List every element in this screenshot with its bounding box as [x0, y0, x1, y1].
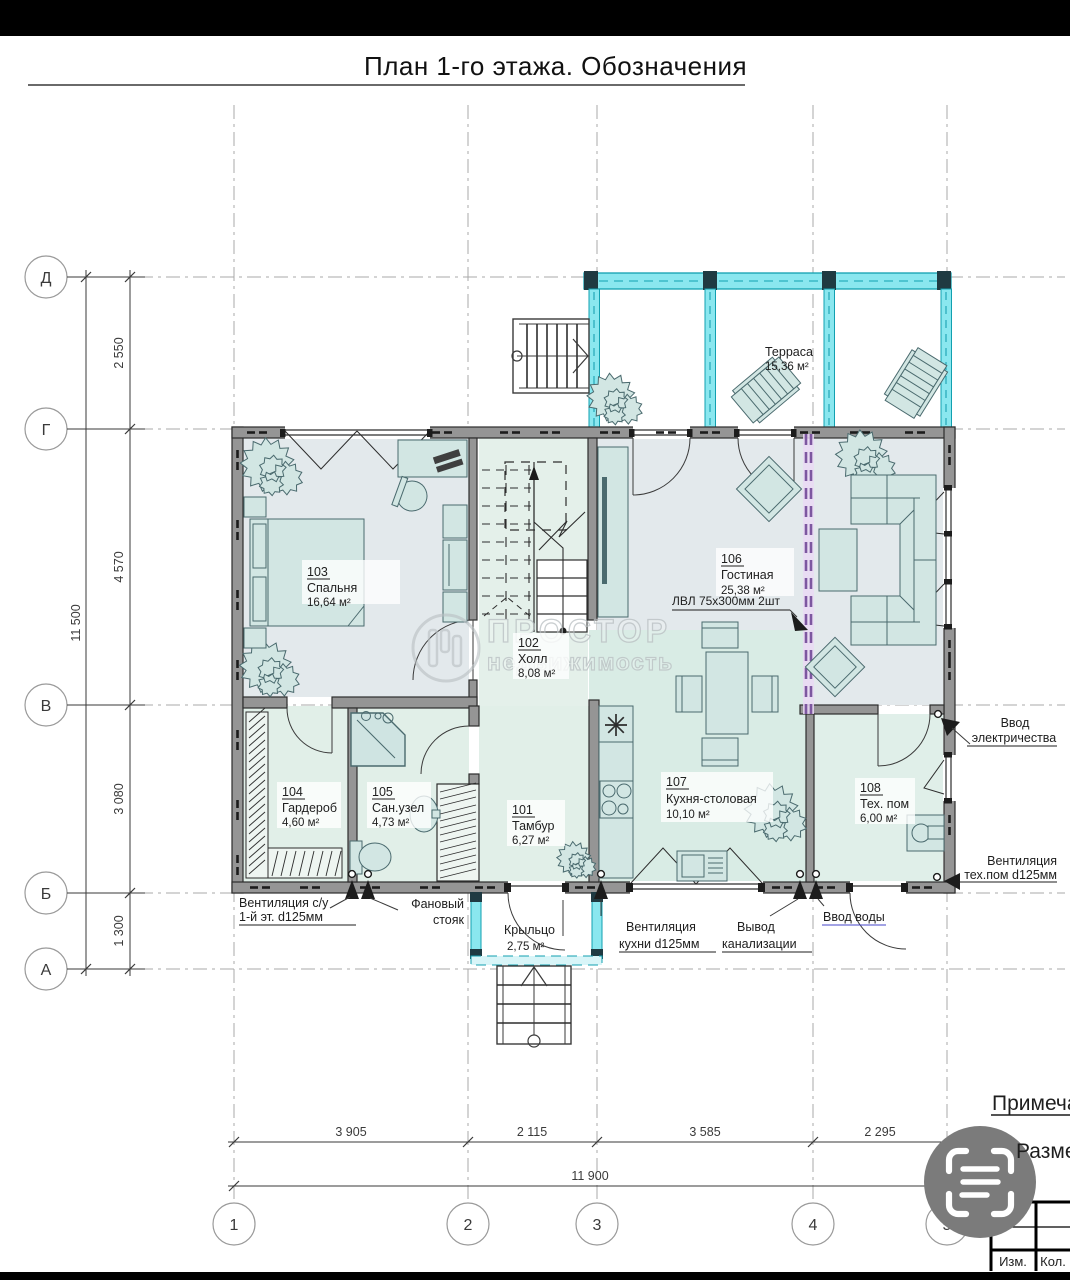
svg-text:Тех. пом: Тех. пом — [860, 797, 909, 811]
svg-text:Вентиляция: Вентиляция — [626, 920, 696, 934]
svg-text:План 1-го этажа. Обозначения: План 1-го этажа. Обозначения — [364, 51, 747, 81]
svg-text:Размеры: Размеры — [1016, 1140, 1070, 1163]
svg-text:2: 2 — [464, 1217, 473, 1234]
svg-text:Гардероб: Гардероб — [282, 801, 337, 815]
svg-text:Кухня-столовая: Кухня-столовая — [666, 792, 757, 806]
svg-text:1: 1 — [230, 1217, 239, 1234]
svg-text:6,00 м²: 6,00 м² — [860, 813, 897, 825]
svg-text:106: 106 — [721, 552, 742, 566]
svg-text:104: 104 — [282, 785, 303, 799]
svg-text:11 900: 11 900 — [571, 1169, 608, 1183]
svg-text:Кол.: Кол. — [1040, 1254, 1066, 1269]
svg-text:103: 103 — [307, 565, 328, 579]
svg-text:108: 108 — [860, 781, 881, 795]
svg-text:2 295: 2 295 — [864, 1125, 895, 1139]
svg-text:ЛВЛ 75х300мм 2шт: ЛВЛ 75х300мм 2шт — [672, 594, 780, 608]
svg-text:4: 4 — [809, 1217, 818, 1234]
svg-text:Крыльцо: Крыльцо — [504, 923, 555, 937]
svg-text:Фановый: Фановый — [411, 897, 464, 911]
svg-text:1-й эт. d125мм: 1-й эт. d125мм — [239, 910, 323, 924]
svg-text:Д: Д — [41, 270, 52, 287]
svg-text:тех.пом d125мм: тех.пом d125мм — [964, 868, 1057, 882]
svg-text:105: 105 — [372, 785, 393, 799]
svg-text:107: 107 — [666, 775, 687, 789]
svg-text:В: В — [41, 698, 52, 715]
svg-text:Холл: Холл — [518, 652, 547, 666]
svg-text:Сан.узел: Сан.узел — [372, 801, 424, 815]
svg-text:Вентиляция: Вентиляция — [987, 854, 1057, 868]
svg-text:Тамбур: Тамбур — [512, 819, 554, 833]
svg-text:стояк: стояк — [433, 913, 465, 927]
svg-text:15,36 м²: 15,36 м² — [765, 361, 809, 373]
svg-text:кухни d125мм: кухни d125мм — [619, 937, 699, 951]
svg-text:2,75 м²: 2,75 м² — [507, 941, 544, 953]
svg-text:3 585: 3 585 — [689, 1125, 720, 1139]
svg-text:Изм.: Изм. — [999, 1254, 1027, 1269]
svg-text:102: 102 — [518, 636, 539, 650]
svg-text:Вывод: Вывод — [737, 920, 775, 934]
svg-text:Вентиляция с/у: Вентиляция с/у — [239, 896, 329, 910]
svg-text:2 115: 2 115 — [517, 1125, 547, 1139]
svg-text:электричества: электричества — [972, 731, 1057, 745]
svg-text:2 550: 2 550 — [112, 337, 126, 368]
svg-text:3 905: 3 905 — [335, 1125, 366, 1139]
svg-text:101: 101 — [512, 803, 533, 817]
svg-text:Терраса: Терраса — [765, 345, 813, 359]
svg-text:Г: Г — [42, 422, 51, 439]
svg-text:1 300: 1 300 — [112, 915, 126, 946]
svg-text:6,27 м²: 6,27 м² — [512, 835, 549, 847]
svg-text:Спальня: Спальня — [307, 581, 357, 595]
svg-text:Гостиная: Гостиная — [721, 568, 773, 582]
svg-text:4 570: 4 570 — [112, 551, 126, 582]
svg-text:10,10 м²: 10,10 м² — [666, 809, 710, 821]
svg-text:8,08 м²: 8,08 м² — [518, 668, 555, 680]
svg-text:11 500: 11 500 — [69, 604, 83, 641]
svg-text:3: 3 — [593, 1217, 602, 1234]
svg-text:3 080: 3 080 — [112, 783, 126, 814]
svg-text:канализации: канализации — [722, 937, 797, 951]
svg-text:Ввод: Ввод — [1001, 716, 1031, 730]
svg-text:Б: Б — [41, 886, 52, 903]
svg-text:4,60 м²: 4,60 м² — [282, 817, 319, 829]
svg-text:Примечание: Примечание — [992, 1092, 1070, 1115]
svg-text:А: А — [41, 962, 52, 979]
svg-text:4,73 м²: 4,73 м² — [372, 817, 409, 829]
svg-text:Ввод воды: Ввод воды — [823, 910, 885, 924]
svg-text:16,64 м²: 16,64 м² — [307, 597, 351, 609]
